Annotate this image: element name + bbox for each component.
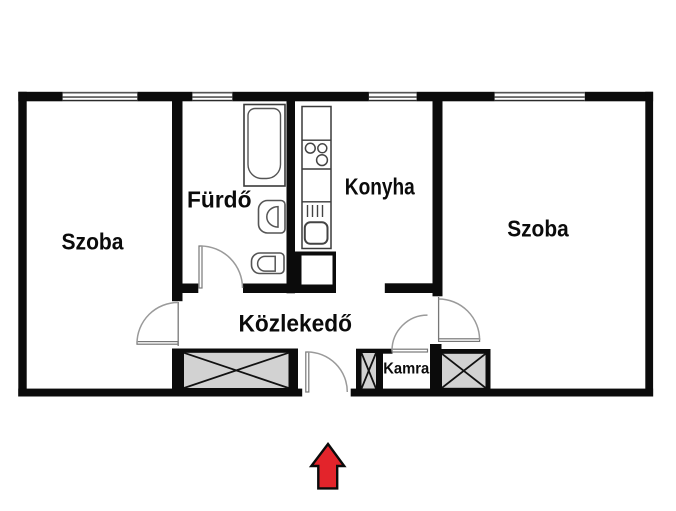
svg-text:Fürdő: Fürdő [187,187,252,213]
svg-text:Kamra: Kamra [383,361,429,378]
svg-text:Közlekedő: Közlekedő [239,310,353,337]
svg-text:Szoba: Szoba [507,216,569,242]
svg-text:Szoba: Szoba [62,229,124,255]
svg-text:Konyha: Konyha [345,173,415,199]
